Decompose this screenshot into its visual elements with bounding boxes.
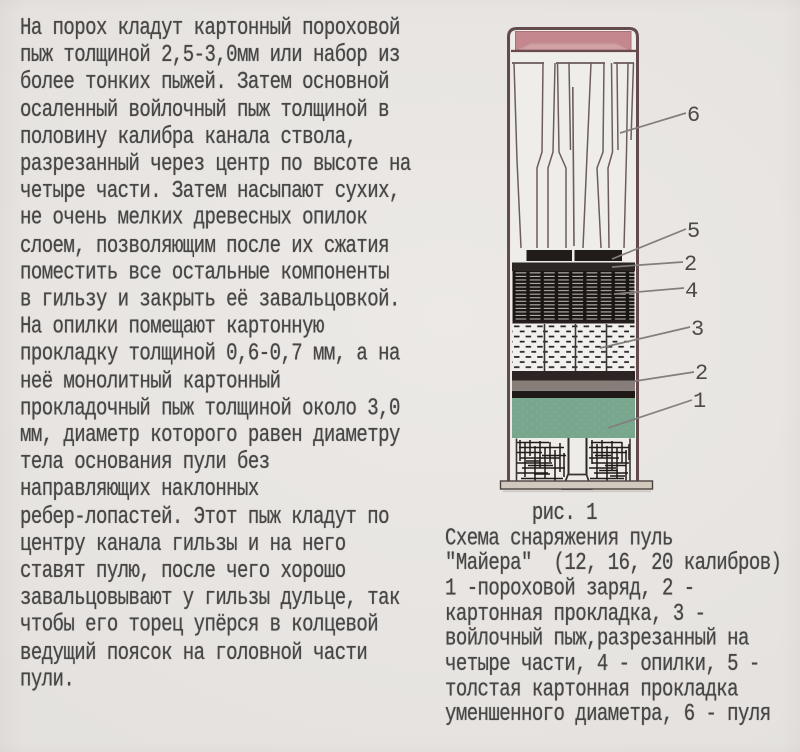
svg-text:1: 1 <box>693 389 706 414</box>
svg-text:3: 3 <box>691 317 704 342</box>
svg-text:2: 2 <box>695 361 708 386</box>
svg-text:5: 5 <box>687 219 700 244</box>
svg-text:6: 6 <box>687 103 699 128</box>
svg-text:4: 4 <box>685 279 698 304</box>
svg-text:2: 2 <box>684 252 697 277</box>
